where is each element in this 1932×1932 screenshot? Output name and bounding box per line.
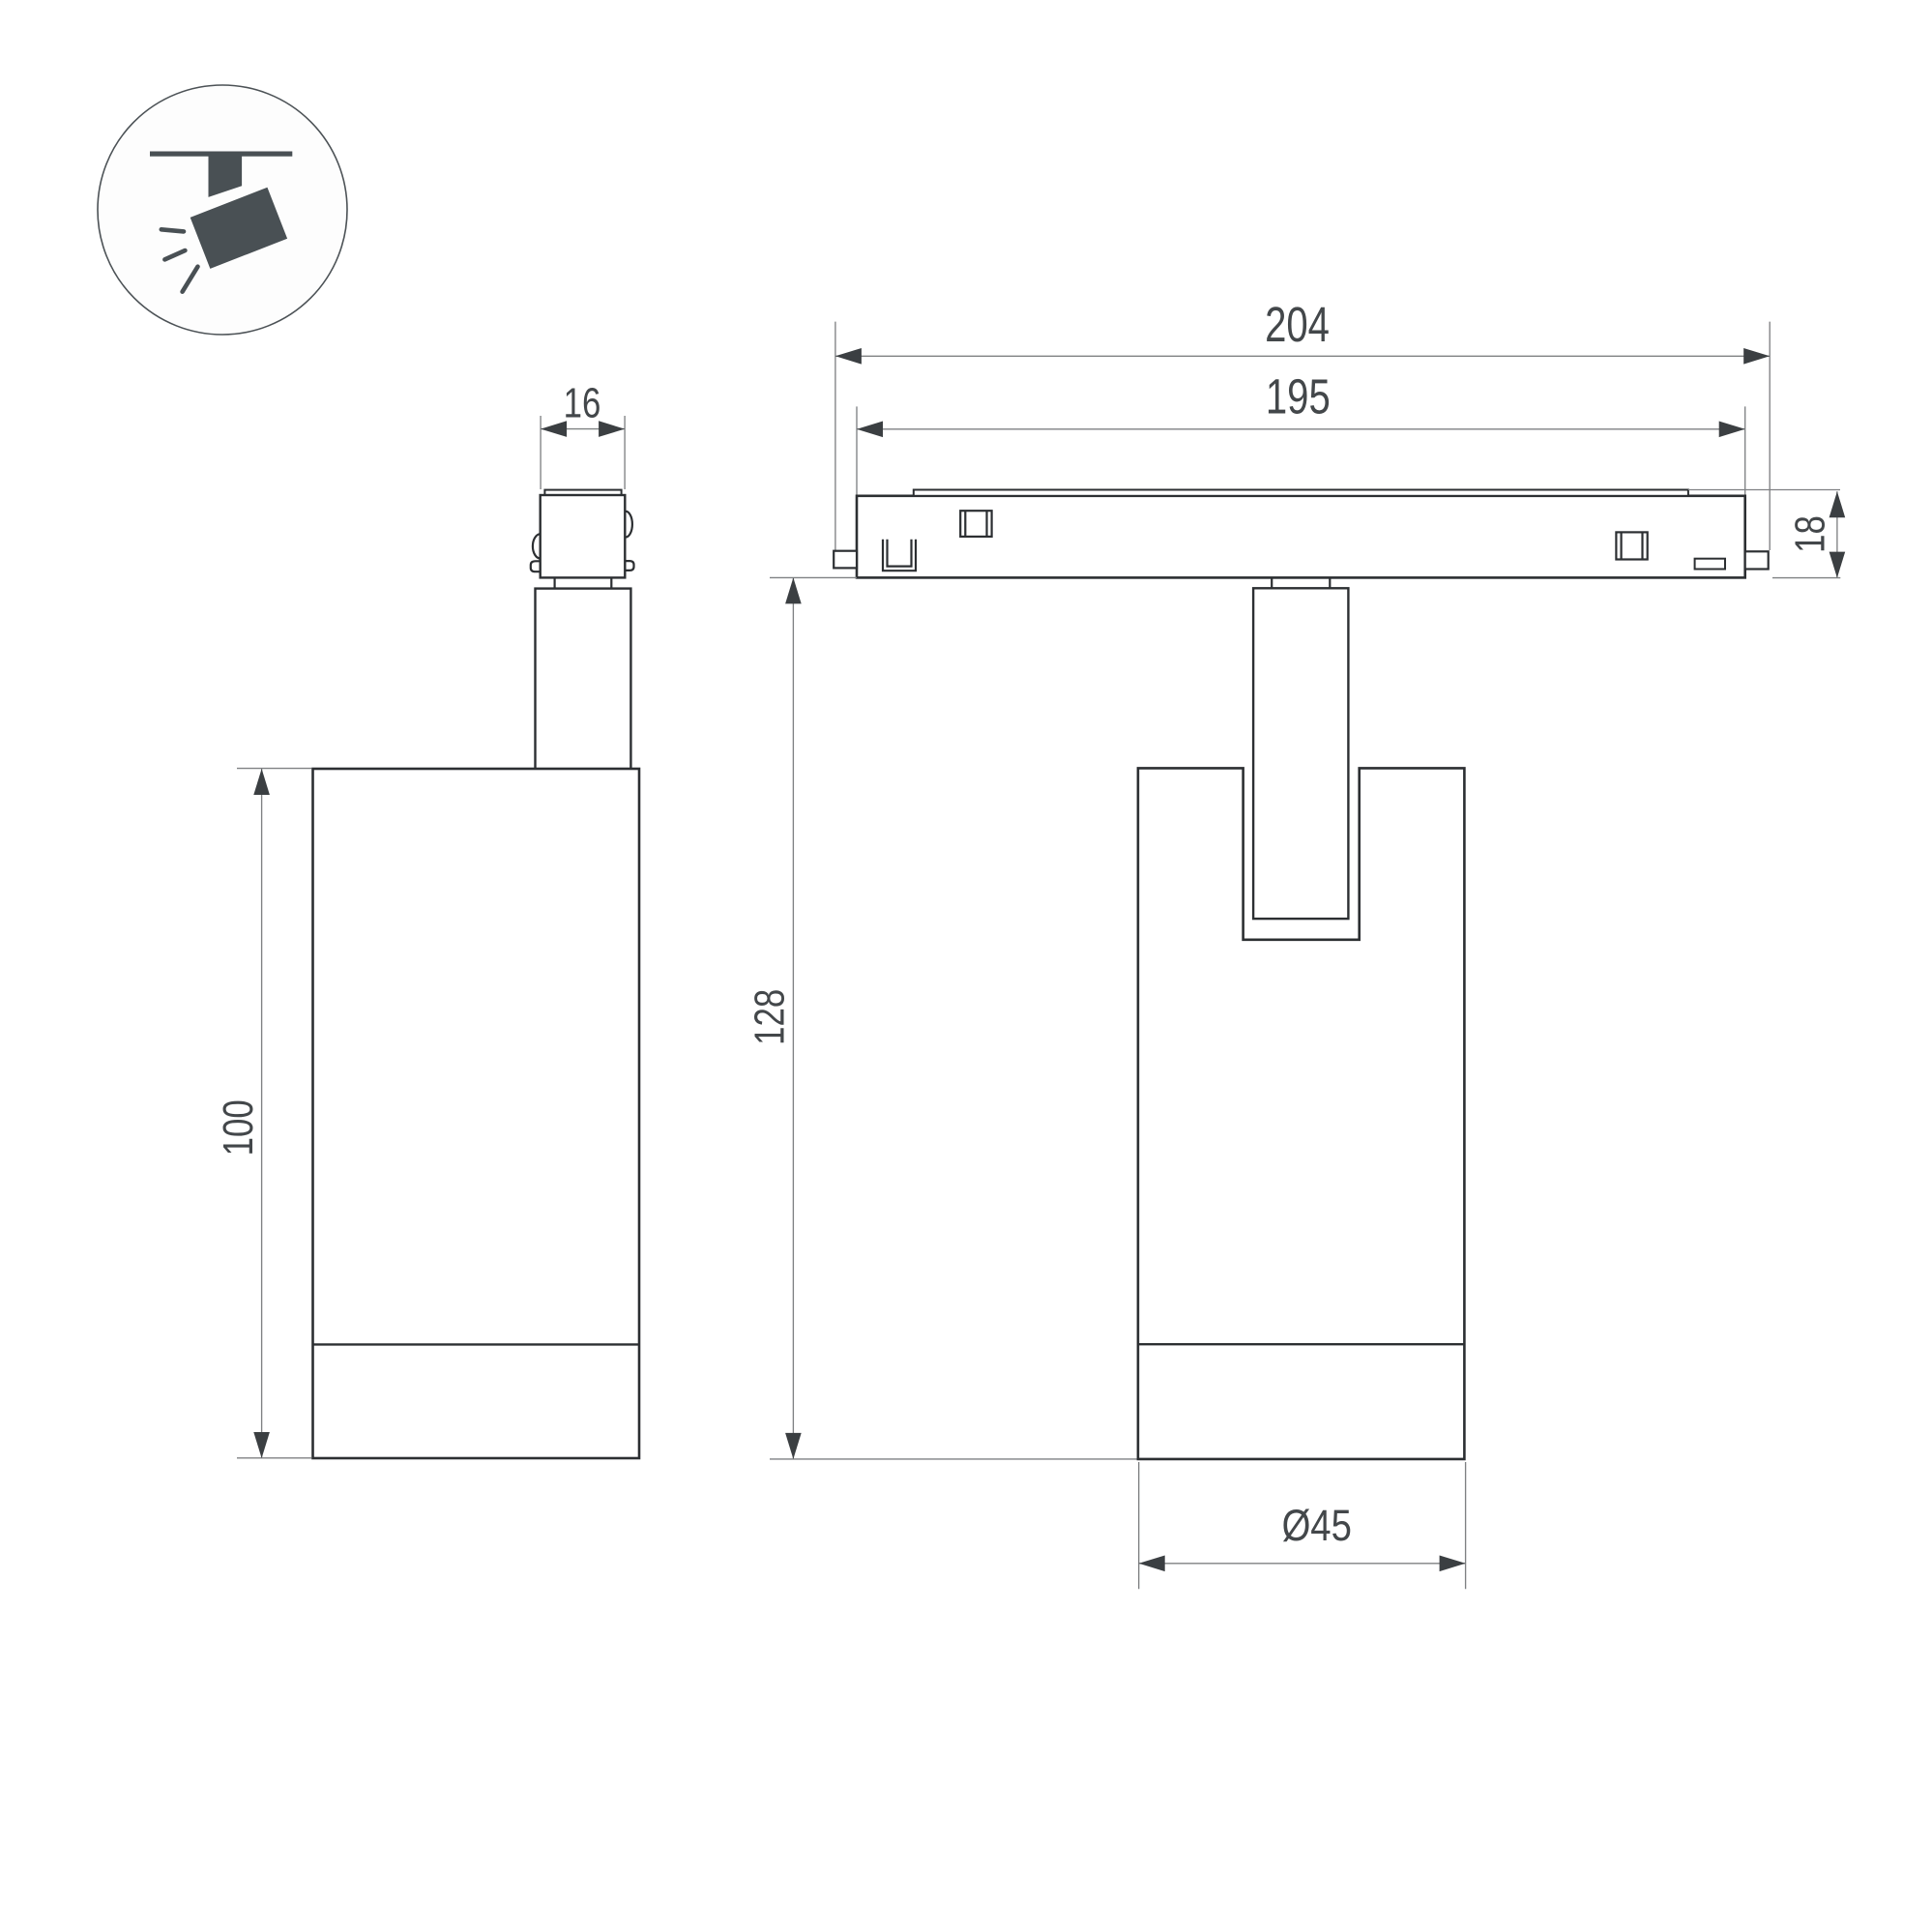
svg-text:Ø45: Ø45	[1282, 1501, 1352, 1550]
svg-text:128: 128	[746, 989, 794, 1045]
svg-text:195: 195	[1266, 368, 1331, 424]
svg-text:204: 204	[1265, 296, 1330, 352]
svg-text:18: 18	[1787, 515, 1834, 553]
svg-text:16: 16	[564, 380, 601, 427]
svg-text:100: 100	[216, 1099, 263, 1156]
